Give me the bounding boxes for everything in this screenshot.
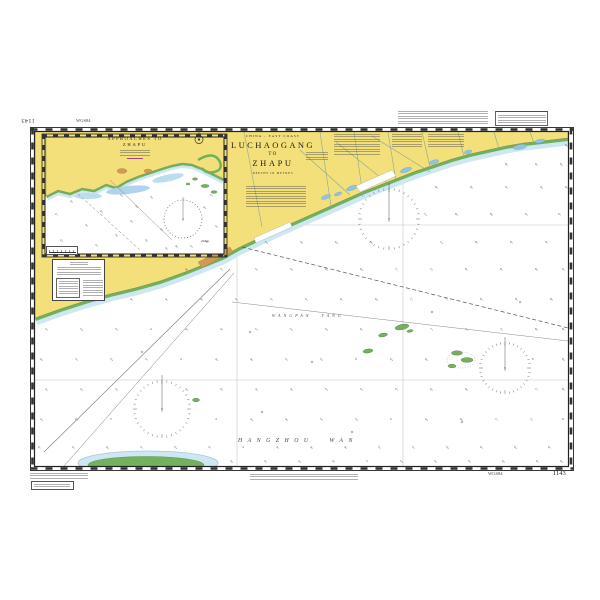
nautical-chart-sheet: 9889929682869194997883889297545964697882… [0,0,600,600]
svg-text:47: 47 [220,327,224,332]
svg-text:78: 78 [424,212,428,217]
svg-text:89: 89 [505,162,509,167]
svg-text:49: 49 [290,387,294,392]
svg-text:41: 41 [220,387,224,392]
svg-text:4: 4 [215,417,217,421]
svg-text:67: 67 [548,445,552,450]
svg-text:68: 68 [460,417,464,422]
svg-text:34: 34 [174,445,178,450]
svg-text:51: 51 [220,267,224,272]
svg-text:52: 52 [285,357,289,362]
svg-text:38: 38 [185,387,189,392]
inset-title-line2: ZHAPU [75,142,195,147]
panel-text [57,267,101,275]
svg-text:72: 72 [395,267,399,272]
svg-text:52: 52 [378,445,382,450]
svg-text:68: 68 [425,357,429,362]
chart-number-bottom-right: 1143 [553,471,566,478]
svg-text:92: 92 [525,212,529,217]
land-note-block [428,134,464,149]
svg-text:44: 44 [250,417,254,422]
svg-text:88: 88 [490,212,494,217]
datum-label-bottom: WGS84 [488,472,503,477]
svg-text:82: 82 [475,240,479,245]
svg-text:37: 37 [145,357,149,362]
svg-text:32: 32 [115,387,119,392]
svg-text:52: 52 [320,417,324,422]
svg-text:65: 65 [536,459,540,464]
panel-title [70,262,88,265]
svg-text:37: 37 [115,327,119,332]
sea-label-wangpan-yang: WANGPAN YANG [272,315,344,319]
svg-text:71: 71 [430,327,434,332]
svg-text:77: 77 [535,387,539,392]
panel-sub-box [56,278,80,298]
svg-text:93: 93 [562,267,566,272]
svg-text:87: 87 [562,327,566,332]
svg-text:55: 55 [412,445,416,450]
svg-text:65: 65 [340,297,344,302]
logo-box-text [34,484,70,489]
svg-text:91: 91 [505,185,509,190]
svg-text:28: 28 [106,445,110,450]
svg-text:31: 31 [75,357,79,362]
margin-note-block [398,111,488,125]
svg-text:42: 42 [130,297,134,302]
inset-scale-bar [49,250,76,253]
svg-text:22: 22 [38,445,42,450]
svg-text:31: 31 [45,327,49,332]
inset-title-line1: APPROACHES TO [75,136,195,141]
drying-shoal [78,451,218,475]
svg-text:56: 56 [320,357,324,362]
svg-text:57: 57 [270,297,274,302]
svg-text:44: 44 [298,459,302,464]
svg-text:63: 63 [360,327,364,332]
svg-text:85: 85 [500,267,504,272]
panel-sub-text [59,281,78,295]
svg-text:89: 89 [550,297,554,302]
svg-text:96: 96 [560,162,564,167]
chart-number-top-left: 1143 [21,117,35,123]
svg-text:44: 44 [215,357,219,362]
chart-title-line3: ZHAPU [193,158,353,168]
svg-text:48: 48 [285,417,289,422]
svg-text:45: 45 [165,297,169,302]
title-block: CHINA – EAST COAST LUCHAOGANG TO ZHAPU D… [193,132,353,175]
svg-text:6: 6 [390,417,392,421]
svg-text:28: 28 [40,357,44,362]
svg-text:8: 8 [532,357,534,361]
svg-text:48: 48 [250,357,254,362]
svg-text:4: 4 [180,357,182,361]
svg-text:83: 83 [535,327,539,332]
svg-text:43: 43 [276,445,280,450]
svg-text:87: 87 [510,240,514,245]
svg-text:59: 59 [290,267,294,272]
svg-text:56: 56 [355,417,359,422]
svg-text:6: 6 [355,357,357,361]
svg-text:49: 49 [344,445,348,450]
svg-text:64: 64 [425,417,429,422]
town-label-zhapu: Zhapu [201,240,209,243]
svg-text:68: 68 [360,267,364,272]
svg-text:79: 79 [500,327,504,332]
title-notes-block [246,186,306,207]
svg-text:8: 8 [562,417,564,421]
svg-text:46: 46 [310,445,314,450]
rock-marks [141,301,521,433]
sea-label-hangzhou-wan: HANGZHOU WAN [238,439,358,445]
depths-note: DEPTHS IN METRES [193,171,353,175]
svg-text:31: 31 [140,445,144,450]
svg-text:43: 43 [185,327,189,332]
svg-text:91: 91 [545,240,549,245]
margin-note-box [495,111,548,126]
svg-text:45: 45 [255,387,259,392]
copyright-note [30,473,88,479]
svg-text:94: 94 [540,185,544,190]
svg-text:65: 65 [430,387,434,392]
svg-text:82: 82 [435,185,439,190]
svg-text:29: 29 [80,387,84,392]
svg-text:83: 83 [455,212,459,217]
svg-text:4: 4 [242,445,244,449]
svg-text:59: 59 [325,327,329,332]
chart-region: CHINA – EAST COAST [193,134,353,138]
svg-text:69: 69 [370,240,374,245]
svg-text:81: 81 [465,267,469,272]
source-data-panel [52,259,105,301]
svg-text:89: 89 [535,267,539,272]
svg-text:34: 34 [80,327,84,332]
svg-text:76: 76 [430,267,434,272]
svg-text:86: 86 [470,185,474,190]
svg-text:76: 76 [530,417,534,422]
inset-scale-note [120,150,150,157]
land-note-block [392,134,422,147]
svg-text:49: 49 [200,297,204,302]
svg-text:47: 47 [332,459,336,464]
svg-text:56: 56 [434,459,438,464]
inset-magenta-note [127,158,143,159]
svg-text:58: 58 [446,445,450,450]
svg-text:84: 84 [562,357,566,362]
svg-text:72: 72 [495,417,499,422]
inset-title-block: APPROACHES TO ZHAPU [75,136,195,147]
svg-text:55: 55 [290,327,294,332]
svg-text:53: 53 [325,387,329,392]
svg-text:85: 85 [515,297,519,302]
svg-text:59: 59 [300,240,304,245]
svg-text:69: 69 [465,387,469,392]
chart-title-line1: LUCHAOGANG [193,140,353,150]
logo-box [31,481,74,490]
svg-text:51: 51 [255,327,259,332]
svg-text:37: 37 [208,445,212,450]
svg-text:34: 34 [110,357,114,362]
svg-text:61: 61 [305,297,309,302]
svg-text:81: 81 [480,297,484,302]
svg-text:64: 64 [335,240,339,245]
svg-text:64: 64 [390,357,394,362]
svg-text:57: 57 [360,387,364,392]
svg-text:92: 92 [535,162,539,167]
svg-text:24: 24 [40,417,44,422]
svg-text:59: 59 [468,459,472,464]
publication-note [250,474,358,481]
svg-text:61: 61 [480,445,484,450]
svg-text:38: 38 [230,459,234,464]
margin-note-text [498,115,546,125]
svg-text:41: 41 [264,459,268,464]
svg-text:97: 97 [558,212,562,217]
svg-text:25: 25 [72,445,76,450]
inset-scale-bar-box [46,246,78,255]
svg-text:5: 5 [366,459,368,463]
svg-text:26: 26 [45,387,49,392]
datum-label-top: WGS84 [76,119,91,124]
svg-text:61: 61 [395,387,399,392]
svg-text:3: 3 [110,417,112,421]
svg-text:73: 73 [410,297,414,302]
svg-text:81: 81 [562,387,566,392]
svg-text:62: 62 [502,459,506,464]
svg-text:64: 64 [514,445,518,450]
svg-text:69: 69 [375,297,379,302]
chart-title-line2: TO [193,152,353,157]
svg-text:4: 4 [150,327,152,331]
svg-text:78: 78 [440,240,444,245]
svg-text:55: 55 [255,267,259,272]
svg-text:68: 68 [560,459,564,464]
panel-text [83,280,103,296]
